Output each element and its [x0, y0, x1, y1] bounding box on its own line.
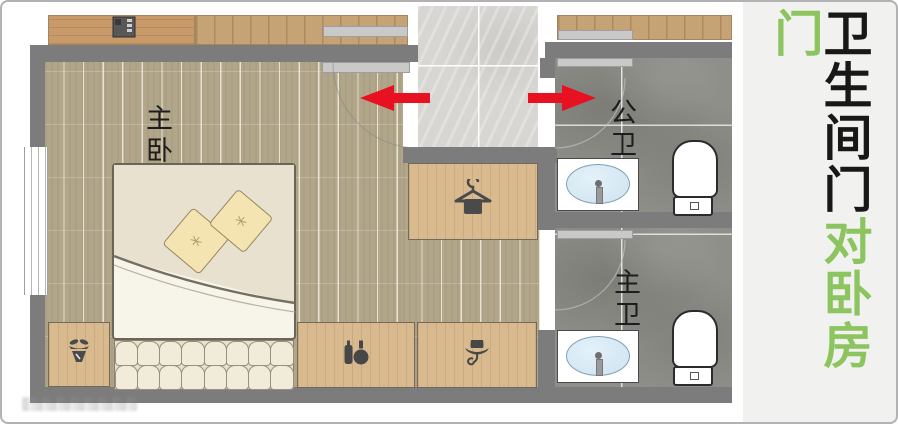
arrow-into-bedroom — [360, 85, 430, 111]
public-bathroom-label: 公卫 — [607, 98, 634, 162]
floor-plan-image: 主卧 公卫 主卫 卫生间门对卧房门 — [0, 0, 898, 424]
caption-black: 卫生间门 — [816, 8, 873, 216]
caption-sidebar: 卫生间门对卧房门 — [743, 2, 896, 422]
master-bathroom-label: 主卫 — [611, 268, 638, 332]
caption-text: 卫生间门对卧房门 — [771, 2, 869, 422]
watermark — [22, 397, 137, 411]
arrow-into-bathroom — [528, 85, 596, 111]
bedroom-label: 主卧 — [143, 104, 170, 168]
